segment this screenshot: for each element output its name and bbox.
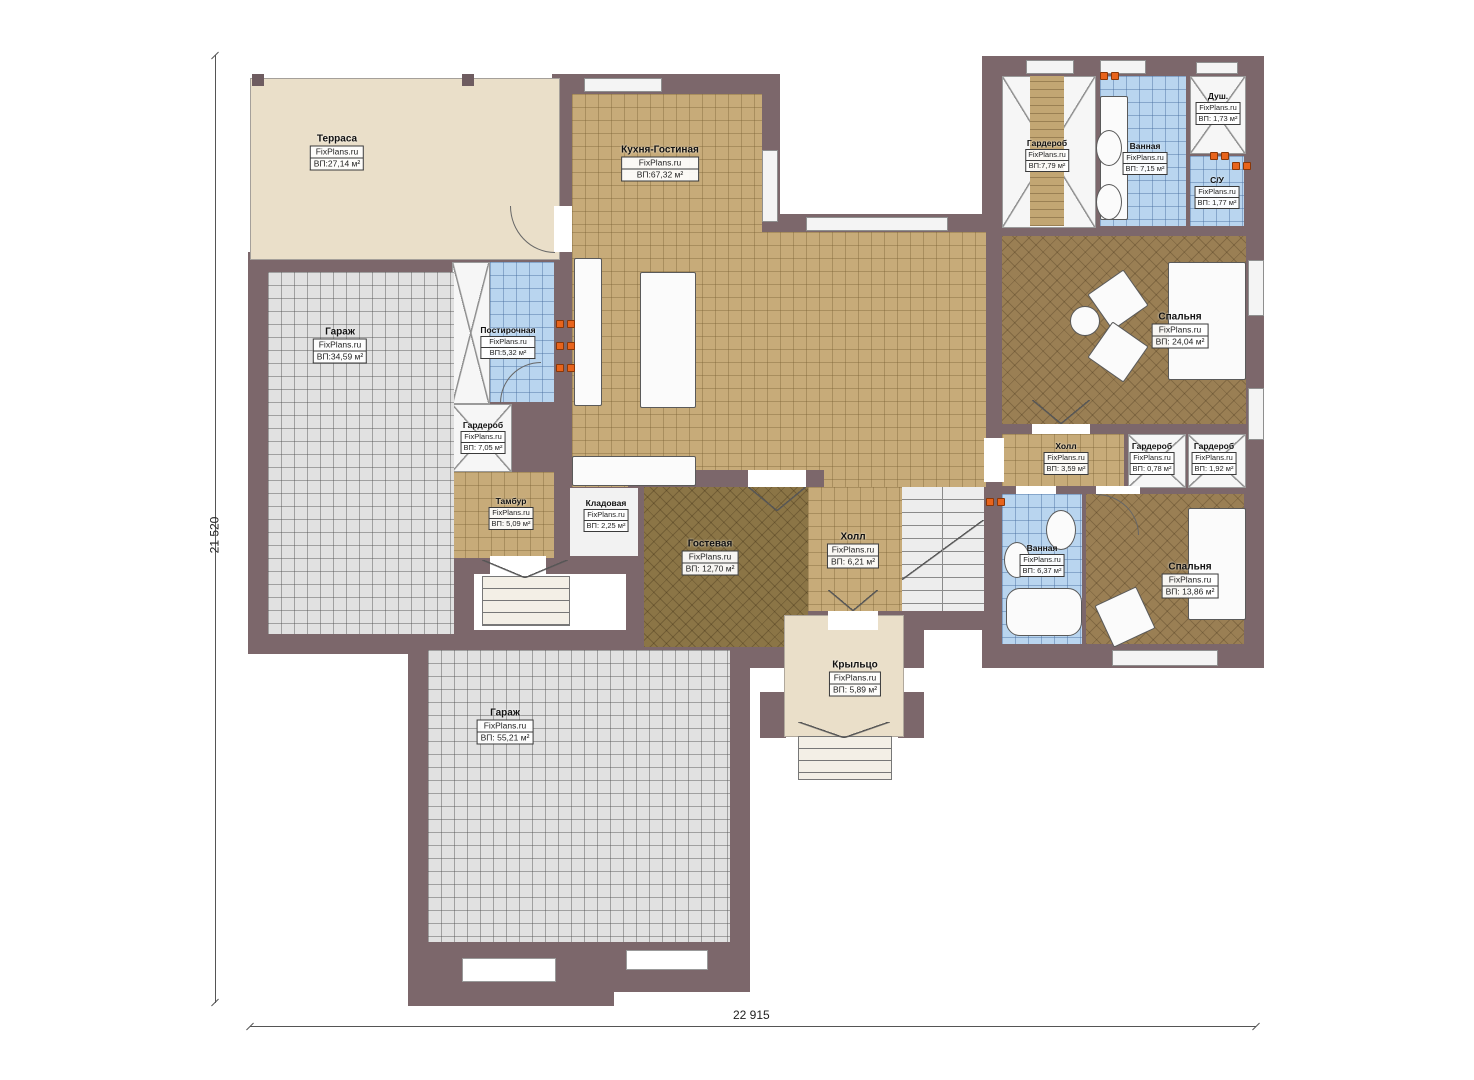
room-label-tambur: Тамбур FixPlans.ru ВП: 5,09 м² <box>489 496 534 530</box>
room-label-wardrobe-078: Гардероб FixPlans.ru ВП: 0,78 м² <box>1130 441 1175 475</box>
window <box>1196 62 1238 74</box>
room-label-wardrobe-192: Гардероб FixPlans.ru ВП: 1,92 м² <box>1192 441 1237 475</box>
window <box>806 217 948 231</box>
dimension-width-label: 22 915 <box>733 1008 770 1022</box>
window <box>1112 650 1218 666</box>
room-label-garage2: Гараж FixPlans.ru ВП: 55,21 м² <box>477 708 534 745</box>
sink <box>1096 184 1122 220</box>
room-label-bath-715: Ванная FixPlans.ru ВП: 7,15 м² <box>1123 141 1168 175</box>
entry-steps <box>482 576 570 626</box>
porch-canopy-line <box>798 722 844 738</box>
door-opening <box>1032 424 1090 434</box>
room-label-shower: Душ. FixPlans.ru ВП: 1,73 м² <box>1196 91 1241 125</box>
kitchen-counter-bottom <box>572 456 696 486</box>
window <box>1248 260 1264 316</box>
double-door <box>853 590 878 611</box>
room-garage-bottom <box>428 650 730 942</box>
vent-icon <box>986 498 1005 506</box>
room-label-bedroom-2: Спальня FixPlans.ru ВП: 13,86 м² <box>1162 562 1219 599</box>
window <box>1026 60 1074 74</box>
door-opening <box>984 438 1004 482</box>
porch-steps <box>798 736 892 780</box>
vent-icon <box>1232 162 1251 170</box>
vent-icon <box>556 342 575 350</box>
vent-icon <box>1100 72 1119 80</box>
wall <box>760 692 786 738</box>
dimension-line-horizontal <box>250 1026 1256 1027</box>
double-door <box>1061 400 1090 424</box>
garage-door-opening <box>626 950 708 970</box>
room-label-kitchen: Кухня-Гостиная FixPlans.ru ВП:67,32 м² <box>621 145 699 182</box>
vent-icon <box>556 364 575 372</box>
door-opening <box>1096 486 1140 494</box>
stairs-cut-line <box>902 520 984 580</box>
double-door <box>748 487 777 511</box>
door-opening <box>1016 486 1056 494</box>
room-label-hall-2: Холл FixPlans.ru ВП: 3,59 м² <box>1044 441 1089 475</box>
double-door <box>1032 400 1061 424</box>
room-label-laundry: Постирочная FixPlans.ru ВП:5,32 м² <box>480 325 535 359</box>
window <box>1248 388 1264 440</box>
window <box>762 150 778 222</box>
double-door <box>777 487 806 511</box>
round-table <box>1070 306 1100 336</box>
bathtub <box>1006 588 1082 636</box>
window <box>584 78 662 92</box>
room-label-wc: С/У FixPlans.ru ВП: 1,77 м² <box>1195 175 1240 209</box>
stairs-divider <box>942 487 943 611</box>
entry-canopy-line <box>482 560 525 578</box>
room-label-kladovaya: Кладовая FixPlans.ru ВП: 2,25 м² <box>584 498 629 532</box>
kitchen-island <box>640 272 696 408</box>
room-label-bedroom-1: Спальня FixPlans.ru ВП: 24,04 м² <box>1152 312 1209 349</box>
room-label-hall-main: Холл FixPlans.ru ВП: 6,21 м² <box>827 532 879 569</box>
door-opening <box>554 206 572 252</box>
door-opening <box>748 470 806 487</box>
door-opening <box>828 611 878 630</box>
dimension-height-label: 21 520 <box>207 517 221 554</box>
room-terrace <box>250 78 560 260</box>
room-label-porch: Крыльцо FixPlans.ru ВП: 5,89 м² <box>829 660 881 697</box>
garage-door-opening <box>462 958 556 982</box>
entry-canopy-line <box>525 560 568 578</box>
column-icon <box>252 74 264 86</box>
porch-canopy-line <box>844 722 890 738</box>
room-kitchen-living <box>572 232 986 487</box>
room-label-bath-637: Ванная FixPlans.ru ВП: 6,37 м² <box>1020 543 1065 577</box>
room-label-terrace: Терраса FixPlans.ru ВП:27,14 м² <box>310 134 364 171</box>
room-label-guest: Гостевая FixPlans.ru ВП: 12,70 м² <box>682 539 739 576</box>
vent-icon <box>1210 152 1229 160</box>
room-label-garage1: Гараж FixPlans.ru ВП:34,59 м² <box>313 327 367 364</box>
vent-icon <box>556 320 575 328</box>
room-label-wardrobe-705: Гардероб FixPlans.ru ВП: 7,05 м² <box>461 420 506 454</box>
kitchen-counter <box>574 258 602 406</box>
sink <box>1096 130 1122 166</box>
floor-plan: 21 520 22 915 <box>0 0 1474 1080</box>
double-door <box>828 590 853 611</box>
room-label-wardrobe-779: Гардероб FixPlans.ru ВП:7,79 м² <box>1025 138 1069 172</box>
column-icon <box>462 74 474 86</box>
